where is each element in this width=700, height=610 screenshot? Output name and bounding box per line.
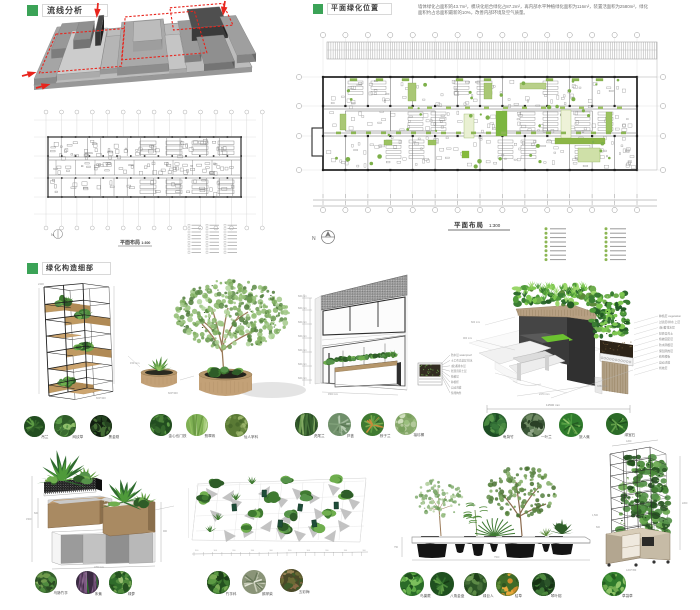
svg-text:300: 300 — [232, 550, 236, 552]
svg-text:1500: 1500 — [26, 518, 32, 521]
svg-text:600 mm: 600 mm — [471, 321, 480, 324]
svg-text:300: 300 — [251, 550, 255, 552]
svg-text:600 mm: 600 mm — [298, 295, 307, 298]
svg-text:2470 mm: 2470 mm — [539, 393, 549, 396]
svg-text:自动浇灌: 自动浇灌 — [659, 360, 670, 364]
svg-text:600 mm: 600 mm — [298, 377, 307, 380]
svg-text:750: 750 — [394, 546, 399, 549]
svg-text:3350 mm: 3350 mm — [597, 385, 607, 388]
svg-text:300: 300 — [344, 550, 348, 552]
svg-text:300: 300 — [214, 550, 218, 552]
svg-text:防水隔根层: 防水隔根层 — [659, 343, 673, 347]
svg-text:600*400: 600*400 — [96, 396, 106, 400]
svg-text:900: 900 — [163, 530, 168, 533]
svg-text:种植层 vegetation: 种植层 vegetation — [659, 314, 682, 318]
svg-text:2200: 2200 — [682, 502, 688, 505]
svg-text:找坡层: 找坡层 — [659, 366, 668, 370]
svg-text:结构楼板: 结构楼板 — [659, 355, 670, 359]
svg-text:轻质营养土: 轻质营养土 — [659, 331, 673, 335]
svg-text:过滤层/排水 上层: 过滤层/排水 上层 — [659, 320, 680, 324]
svg-text:2400: 2400 — [38, 282, 44, 286]
svg-text:900 mm: 900 mm — [463, 337, 472, 340]
svg-text:N: N — [51, 232, 54, 237]
svg-text:植被固定层: 植被固定层 — [659, 337, 673, 341]
svg-text:300: 300 — [269, 550, 273, 552]
svg-text:11500 mm: 11500 mm — [546, 403, 560, 407]
svg-text:保温隔热层: 保温隔热层 — [659, 349, 673, 353]
svg-text:300: 300 — [325, 550, 329, 552]
svg-text:300: 300 — [288, 550, 292, 552]
svg-text:300: 300 — [307, 550, 311, 552]
svg-text:600*400: 600*400 — [168, 391, 178, 395]
svg-text:150 mm: 150 mm — [130, 361, 139, 365]
svg-text:600 mm: 600 mm — [298, 321, 307, 324]
svg-text:600: 600 — [34, 512, 39, 515]
svg-text:1:300: 1:300 — [489, 223, 501, 228]
svg-text:600 mm: 600 mm — [298, 363, 307, 366]
svg-text:600 mm: 600 mm — [298, 349, 307, 352]
svg-text:2250 mm: 2250 mm — [94, 566, 104, 569]
svg-text:300: 300 — [362, 550, 366, 552]
svg-text:1200: 1200 — [626, 440, 632, 443]
svg-text:4500 mm: 4500 mm — [328, 393, 338, 396]
svg-text:300: 300 — [195, 550, 199, 552]
svg-text:平面布局: 平面布局 — [454, 220, 484, 229]
svg-text:600 mm: 600 mm — [298, 307, 307, 310]
svg-text:(板)蓄排水层: (板)蓄排水层 — [659, 326, 675, 330]
svg-text:1200*450: 1200*450 — [626, 569, 637, 572]
svg-text:平面布局 1:300: 平面布局 1:300 — [120, 239, 150, 246]
svg-text:600: 600 — [596, 526, 601, 529]
svg-text:600 mm: 600 mm — [298, 335, 307, 338]
svg-text:N: N — [312, 236, 316, 242]
svg-text:7500: 7500 — [494, 556, 500, 559]
